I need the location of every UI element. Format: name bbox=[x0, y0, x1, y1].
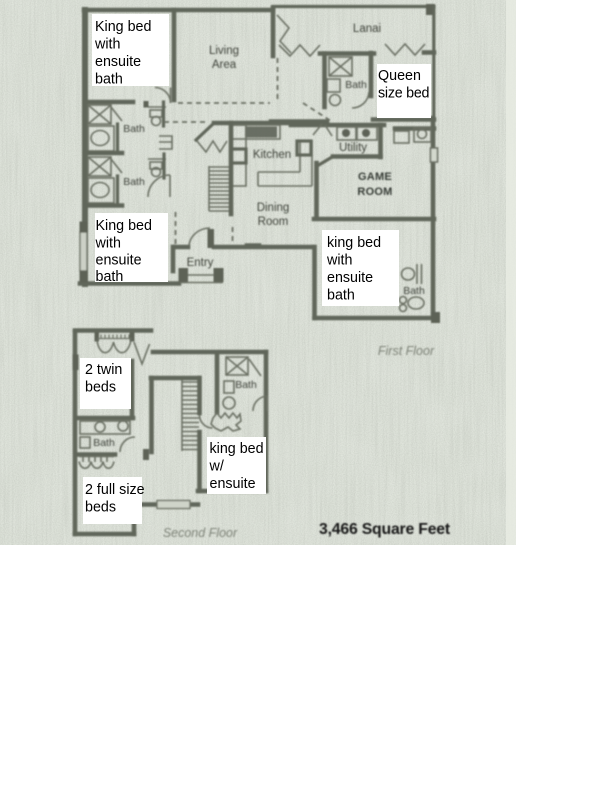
svg-text:Bath: Bath bbox=[235, 379, 257, 391]
svg-text:bath: bath bbox=[95, 72, 123, 88]
svg-text:Room: Room bbox=[258, 216, 289, 228]
svg-text:with: with bbox=[95, 236, 121, 252]
svg-text:2 twin: 2 twin bbox=[85, 362, 122, 378]
svg-text:Bath: Bath bbox=[123, 123, 145, 135]
svg-text:2 full size: 2 full size bbox=[85, 482, 145, 498]
svg-text:ensuite: ensuite bbox=[95, 54, 141, 70]
svg-text:Lanai: Lanai bbox=[353, 23, 381, 35]
svg-text:king bed: king bed bbox=[210, 441, 264, 457]
svg-text:Entry: Entry bbox=[187, 257, 214, 269]
svg-text:ensuite: ensuite bbox=[96, 253, 142, 269]
svg-text:Kitchen: Kitchen bbox=[253, 149, 291, 161]
svg-text:Second Floor: Second Floor bbox=[163, 526, 238, 540]
svg-text:GAME: GAME bbox=[358, 171, 392, 183]
svg-text:King bed: King bed bbox=[96, 218, 152, 234]
svg-text:with: with bbox=[326, 253, 352, 269]
svg-text:Utility: Utility bbox=[339, 142, 367, 154]
svg-text:ensuite: ensuite bbox=[327, 270, 373, 286]
svg-text:Bath: Bath bbox=[93, 437, 115, 449]
svg-text:bath: bath bbox=[327, 288, 355, 304]
svg-text:ensuite: ensuite bbox=[210, 476, 256, 492]
svg-text:Bath: Bath bbox=[403, 285, 425, 297]
svg-text:Area: Area bbox=[212, 59, 237, 71]
svg-text:ROOM: ROOM bbox=[357, 186, 392, 198]
svg-text:beds: beds bbox=[85, 500, 116, 516]
svg-text:Queen: Queen bbox=[378, 68, 421, 84]
svg-text:3,466 Square Feet: 3,466 Square Feet bbox=[319, 521, 451, 538]
svg-text:king bed: king bed bbox=[327, 235, 381, 251]
svg-text:Living: Living bbox=[209, 45, 239, 57]
svg-text:with: with bbox=[94, 37, 120, 53]
svg-text:Bath: Bath bbox=[123, 176, 145, 188]
svg-text:w/: w/ bbox=[209, 459, 224, 475]
svg-text:size bed: size bed bbox=[378, 86, 430, 102]
svg-text:Dining: Dining bbox=[257, 202, 290, 214]
svg-text:Bath: Bath bbox=[345, 79, 367, 91]
svg-text:King bed: King bed bbox=[95, 19, 151, 35]
svg-text:bath: bath bbox=[96, 269, 124, 285]
svg-text:beds: beds bbox=[85, 380, 116, 396]
svg-text:First Floor: First Floor bbox=[378, 344, 435, 358]
